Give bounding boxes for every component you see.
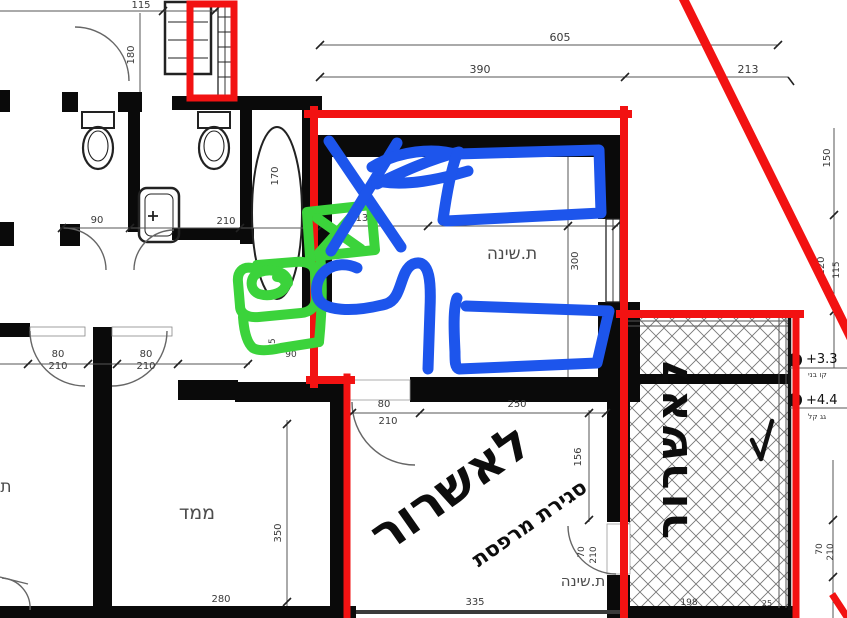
toilet-tank	[198, 112, 230, 128]
dim-bed2-door-w: 80	[378, 399, 391, 410]
dim-bath-b: 210	[216, 216, 235, 227]
dim-right-a: 150	[822, 148, 833, 167]
dim-bed-c: 300	[570, 251, 581, 270]
wall-segment	[240, 110, 252, 232]
dim-tl-width: 115	[131, 0, 150, 11]
green-spiral	[252, 270, 288, 295]
dim-bed2-door2-h: 210	[589, 546, 599, 563]
dim-out-door-w: 70	[815, 543, 825, 555]
wall-segment	[93, 327, 112, 618]
red-diagonal-corner	[834, 597, 847, 618]
label-mamad: ממד	[179, 502, 215, 524]
wall-segment	[0, 90, 10, 112]
label-room-partial: ת	[0, 477, 11, 497]
dim-top-total: 605	[550, 31, 571, 44]
blue-bed-box-top	[443, 150, 601, 221]
dim-bath-a: 90	[91, 215, 104, 226]
dim-out-door-h: 210	[826, 543, 836, 560]
wall-segment	[235, 382, 345, 402]
dim-bed2-door2-w: 70	[577, 546, 587, 558]
label-bedroom-top: ת.שינה	[487, 244, 537, 264]
label-bedroom-bottom: ת.שינה	[561, 572, 605, 590]
dim-hall-door2-h: 210	[136, 361, 155, 372]
elevation-note-2: גג קל	[808, 412, 826, 421]
dim-mamad-w: 280	[211, 594, 230, 605]
door-frame	[30, 327, 85, 336]
toilet-bowl-inner	[88, 131, 108, 161]
blue-curve	[317, 263, 431, 369]
dim-top-b: 213	[738, 63, 759, 76]
toilet-bowl-inner	[204, 131, 224, 161]
elevation-value-2: +4.4	[806, 393, 838, 408]
toilet-tank	[82, 112, 114, 128]
toilet-bowl	[83, 127, 113, 169]
door-frame	[348, 380, 410, 400]
wall-thin-bottom	[356, 610, 626, 614]
wall-segment	[172, 228, 242, 240]
dim-bed2-b: 156	[573, 447, 584, 466]
dim-right-c: 115	[832, 261, 842, 278]
dim-tub: 170	[270, 166, 281, 185]
wall-segment	[62, 92, 78, 112]
dim-hall-door1-h: 210	[48, 361, 67, 372]
elevation-value-1: +3.3	[806, 352, 838, 367]
dim-bed2-a: 250	[507, 399, 526, 410]
dim-hatch-a: 198	[680, 598, 697, 608]
floor-plan-canvas: 605 390 213 115 180 150 120 115 90 210 1…	[0, 0, 847, 618]
dim-hall-door2-w: 80	[140, 349, 153, 360]
dim-hall-door1-w: 80	[52, 349, 65, 360]
door-frame	[112, 327, 172, 336]
blue-bed-box-bottom	[454, 298, 609, 369]
elevation-note-1: קו בני	[808, 370, 827, 379]
dim-hatch-b: 25	[762, 599, 772, 608]
label-approval-vertical: לאשרור	[647, 355, 698, 539]
dim-bed2-w: 335	[465, 597, 484, 608]
wall-segment	[0, 222, 14, 246]
dim-bed2-door-h: 210	[378, 416, 397, 427]
toilet-bowl	[199, 127, 229, 169]
floor-plan: 605 390 213 115 180 150 120 115 90 210 1…	[0, 0, 847, 618]
dim-tl-height: 180	[126, 45, 137, 64]
wall-segment	[118, 92, 142, 112]
red-diagonal	[681, 0, 847, 338]
door-leaf	[0, 577, 28, 584]
window-glazing	[218, 2, 232, 98]
wall-segment	[178, 380, 238, 400]
dim-top-a: 390	[470, 63, 491, 76]
sink-tap-cross	[148, 211, 158, 221]
wall-bottom	[0, 606, 356, 618]
dim-mamad-h: 350	[273, 523, 284, 542]
wall-segment	[0, 323, 30, 337]
